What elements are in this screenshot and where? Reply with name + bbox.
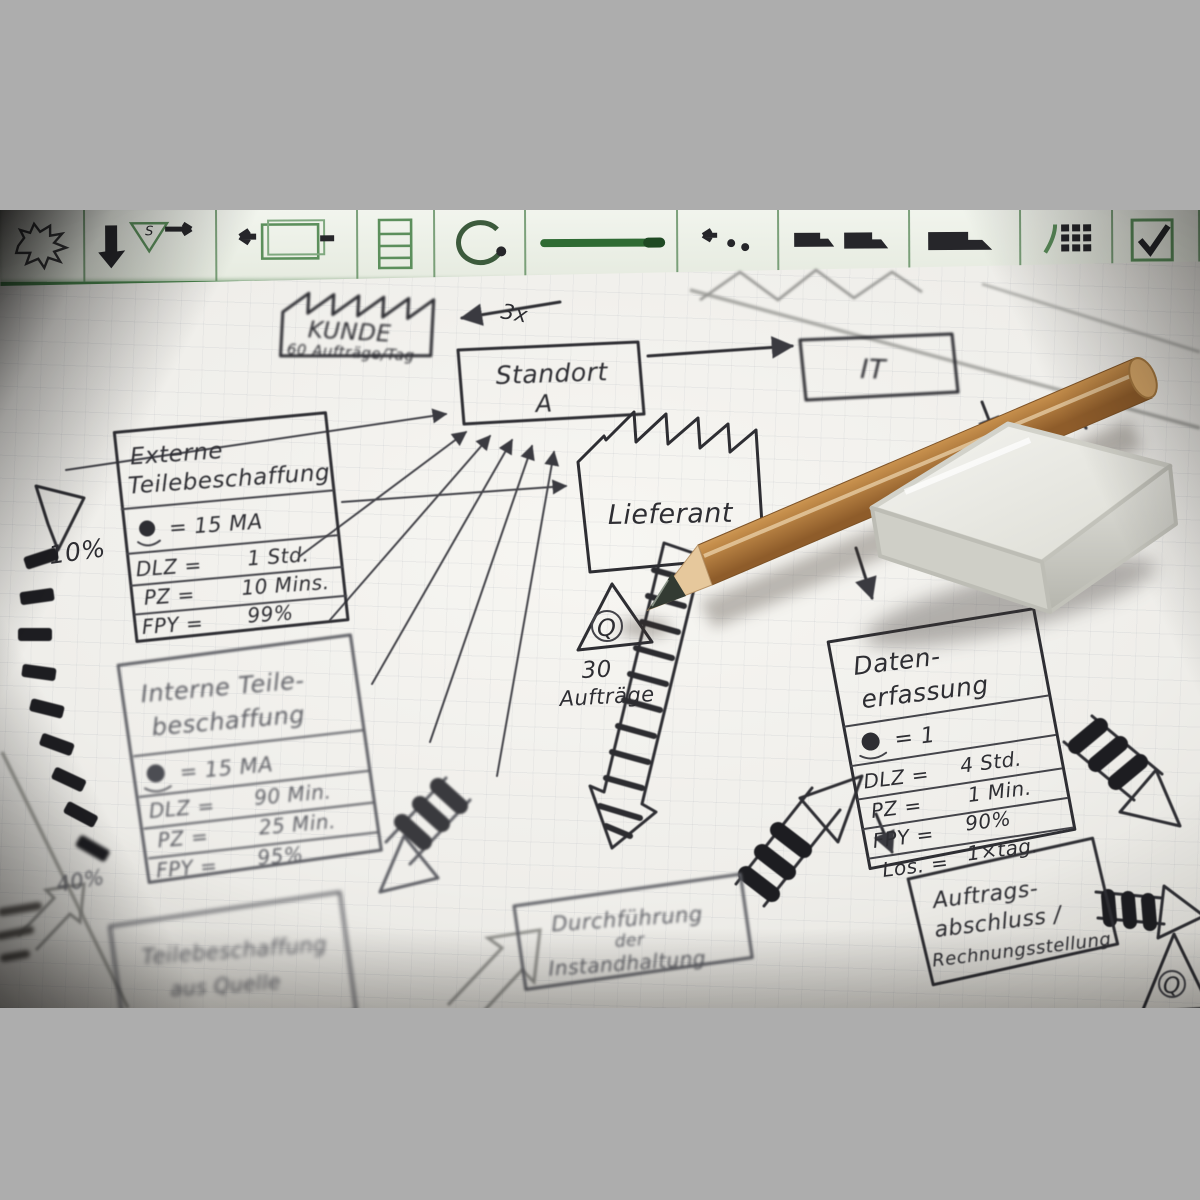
it-box: IT bbox=[800, 334, 958, 400]
daten-title1: Daten- bbox=[852, 642, 943, 681]
striped-arrow-down-left bbox=[380, 778, 470, 892]
externe-pz-label: PZ = bbox=[143, 582, 195, 609]
interne-operator: = 15 MA bbox=[179, 752, 274, 784]
externe-fpy-value: 99% bbox=[247, 601, 295, 628]
kunde-box: KUNDE 60 Aufträge/Tag bbox=[280, 292, 433, 366]
interne-pz-label: PZ = bbox=[157, 824, 210, 852]
interne-title2: beschaffung bbox=[150, 700, 306, 741]
queue-triangle-2: Q bbox=[1142, 934, 1200, 1008]
teile-unten-box: Teilebeschaffung aus Quelle bbox=[108, 892, 357, 1008]
operator-icon bbox=[143, 763, 171, 792]
striped-arrow-right bbox=[1096, 886, 1200, 938]
it-label: IT bbox=[860, 354, 889, 386]
striped-arrow-right-down bbox=[1064, 716, 1180, 826]
teile-unten-line1: Teilebeschaffung bbox=[141, 932, 328, 969]
daten-fpy-value: 90% bbox=[964, 806, 1013, 835]
interne-box: Interne Teile- beschaffung = 15 MA DLZ =… bbox=[117, 634, 382, 885]
lieferant-label: Lieferant bbox=[608, 498, 735, 531]
daten-operator: = 1 bbox=[893, 723, 937, 753]
externe-dlz-value: 1 Std. bbox=[247, 542, 310, 570]
interne-dlz-value: 90 Min. bbox=[253, 779, 332, 810]
externe-box: Externe Teilebeschaffung = 15 MA DLZ = 1… bbox=[114, 412, 348, 642]
vsm-hand-drawing: 3x KUNDE 60 Aufträge/Tag Standort A IT L… bbox=[0, 210, 1200, 1008]
daten-box: Daten- erfassung = 1 DLZ = 4 Std. PZ = 1… bbox=[827, 607, 1078, 885]
operator-icon bbox=[858, 731, 887, 760]
gray-border-frame: S bbox=[0, 0, 1200, 1200]
daten-dlz-label: DLZ = bbox=[862, 762, 930, 794]
standort-line2: A bbox=[533, 389, 553, 418]
interne-fpy-value: 95% bbox=[256, 842, 304, 870]
externe-title1: Externe bbox=[129, 438, 224, 470]
durchfuehrung-line2: der bbox=[614, 930, 646, 952]
teile-unten-line2: aus Quelle bbox=[169, 970, 281, 1002]
externe-operator: = 15 MA bbox=[168, 509, 263, 539]
flow-frequency-label: 3x bbox=[499, 299, 530, 327]
kunde-subtitle: 60 Aufträge/Tag bbox=[286, 340, 415, 365]
daten-dlz-value: 4 Std. bbox=[959, 746, 1023, 777]
standort-a-box: Standort A bbox=[458, 342, 644, 424]
queue1-symbol: Q bbox=[597, 614, 616, 642]
queue1-count: 30 bbox=[581, 656, 613, 684]
standort-line1: Standort bbox=[495, 357, 609, 390]
externe-fpy-label: FPY = bbox=[141, 611, 204, 639]
externe-pz-value: 10 Mins. bbox=[241, 570, 331, 600]
daten-pz-label: PZ = bbox=[870, 793, 923, 823]
daten-los-value: 1×täg. bbox=[966, 833, 1040, 866]
durchfuehrung-box: Durchführung der Instandhaltung bbox=[513, 874, 753, 990]
daten-pz-value: 1 Min. bbox=[966, 775, 1032, 807]
externe-dlz-label: DLZ = bbox=[135, 553, 202, 582]
striped-arrow-up-right bbox=[736, 776, 862, 906]
queue2-symbol: Q bbox=[1163, 974, 1181, 999]
photo-of-vsm-sketch: S bbox=[0, 210, 1200, 1008]
interne-dlz-label: DLZ = bbox=[148, 793, 216, 823]
left-edge-scribbles bbox=[0, 906, 38, 958]
pct-40-label: 40% bbox=[55, 865, 107, 897]
interne-fpy-label: FPY = bbox=[155, 853, 218, 882]
operator-icon bbox=[137, 520, 161, 546]
